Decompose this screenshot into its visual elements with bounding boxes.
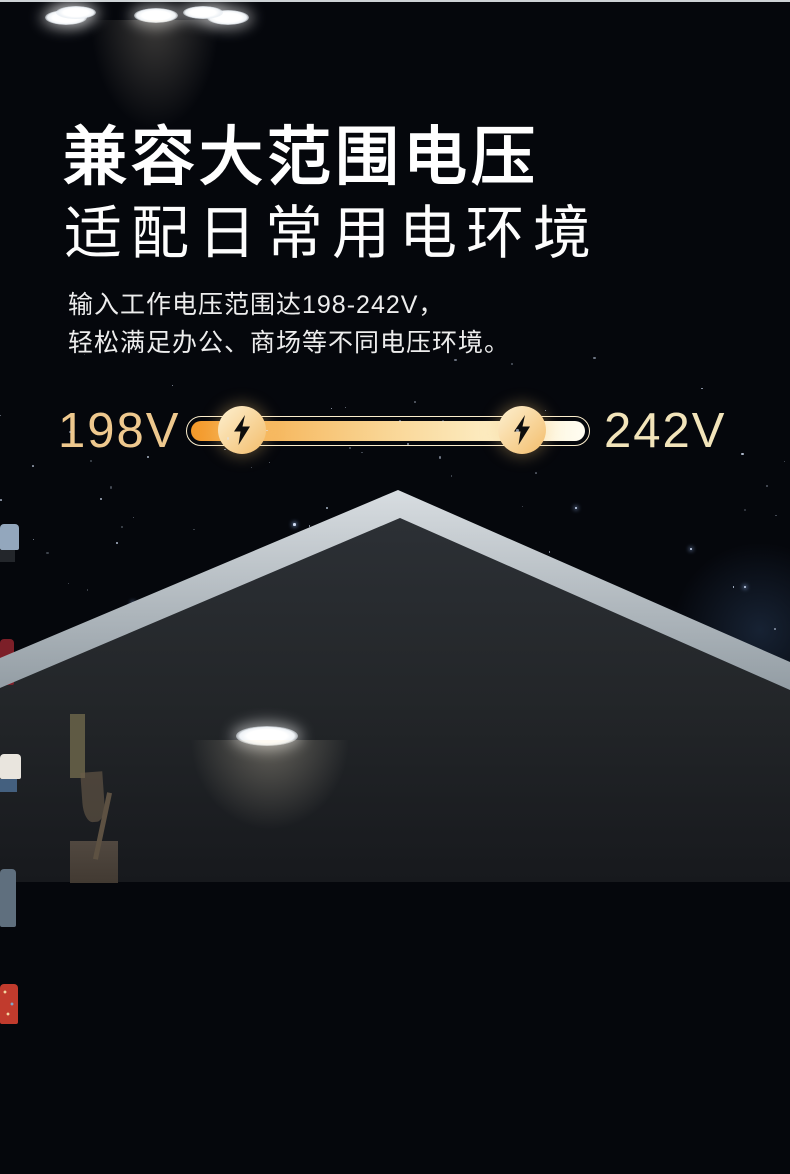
mannequin-blue-top (0, 524, 54, 639)
wall-frame (0, 114, 54, 254)
wall-shelf (0, 0, 44, 114)
wall-shelf (0, 254, 42, 388)
downlight (56, 6, 96, 19)
hanging-garment (70, 714, 85, 778)
wall-frame (0, 388, 46, 524)
downlight (134, 8, 178, 23)
mannequin-red-floral-dress (0, 984, 54, 1099)
house-gable (0, 0, 790, 1174)
promo-page: 兼容大范围电压 适配日常用电环境 输入工作电压范围达198-242V， 轻松满足… (0, 0, 790, 1174)
light-cone (190, 740, 350, 830)
downlight (183, 6, 223, 19)
mannequin-white-shirt (0, 754, 54, 869)
high-heel-shoes (70, 832, 85, 841)
mannequin-maroon-dress (0, 639, 54, 754)
display-pedestal (70, 841, 118, 883)
closet-room-photo (70, 714, 400, 883)
closet-room (70, 714, 400, 882)
downlight (236, 726, 298, 746)
shop-window (0, 0, 54, 1099)
mannequin-gray-dress (0, 869, 54, 984)
